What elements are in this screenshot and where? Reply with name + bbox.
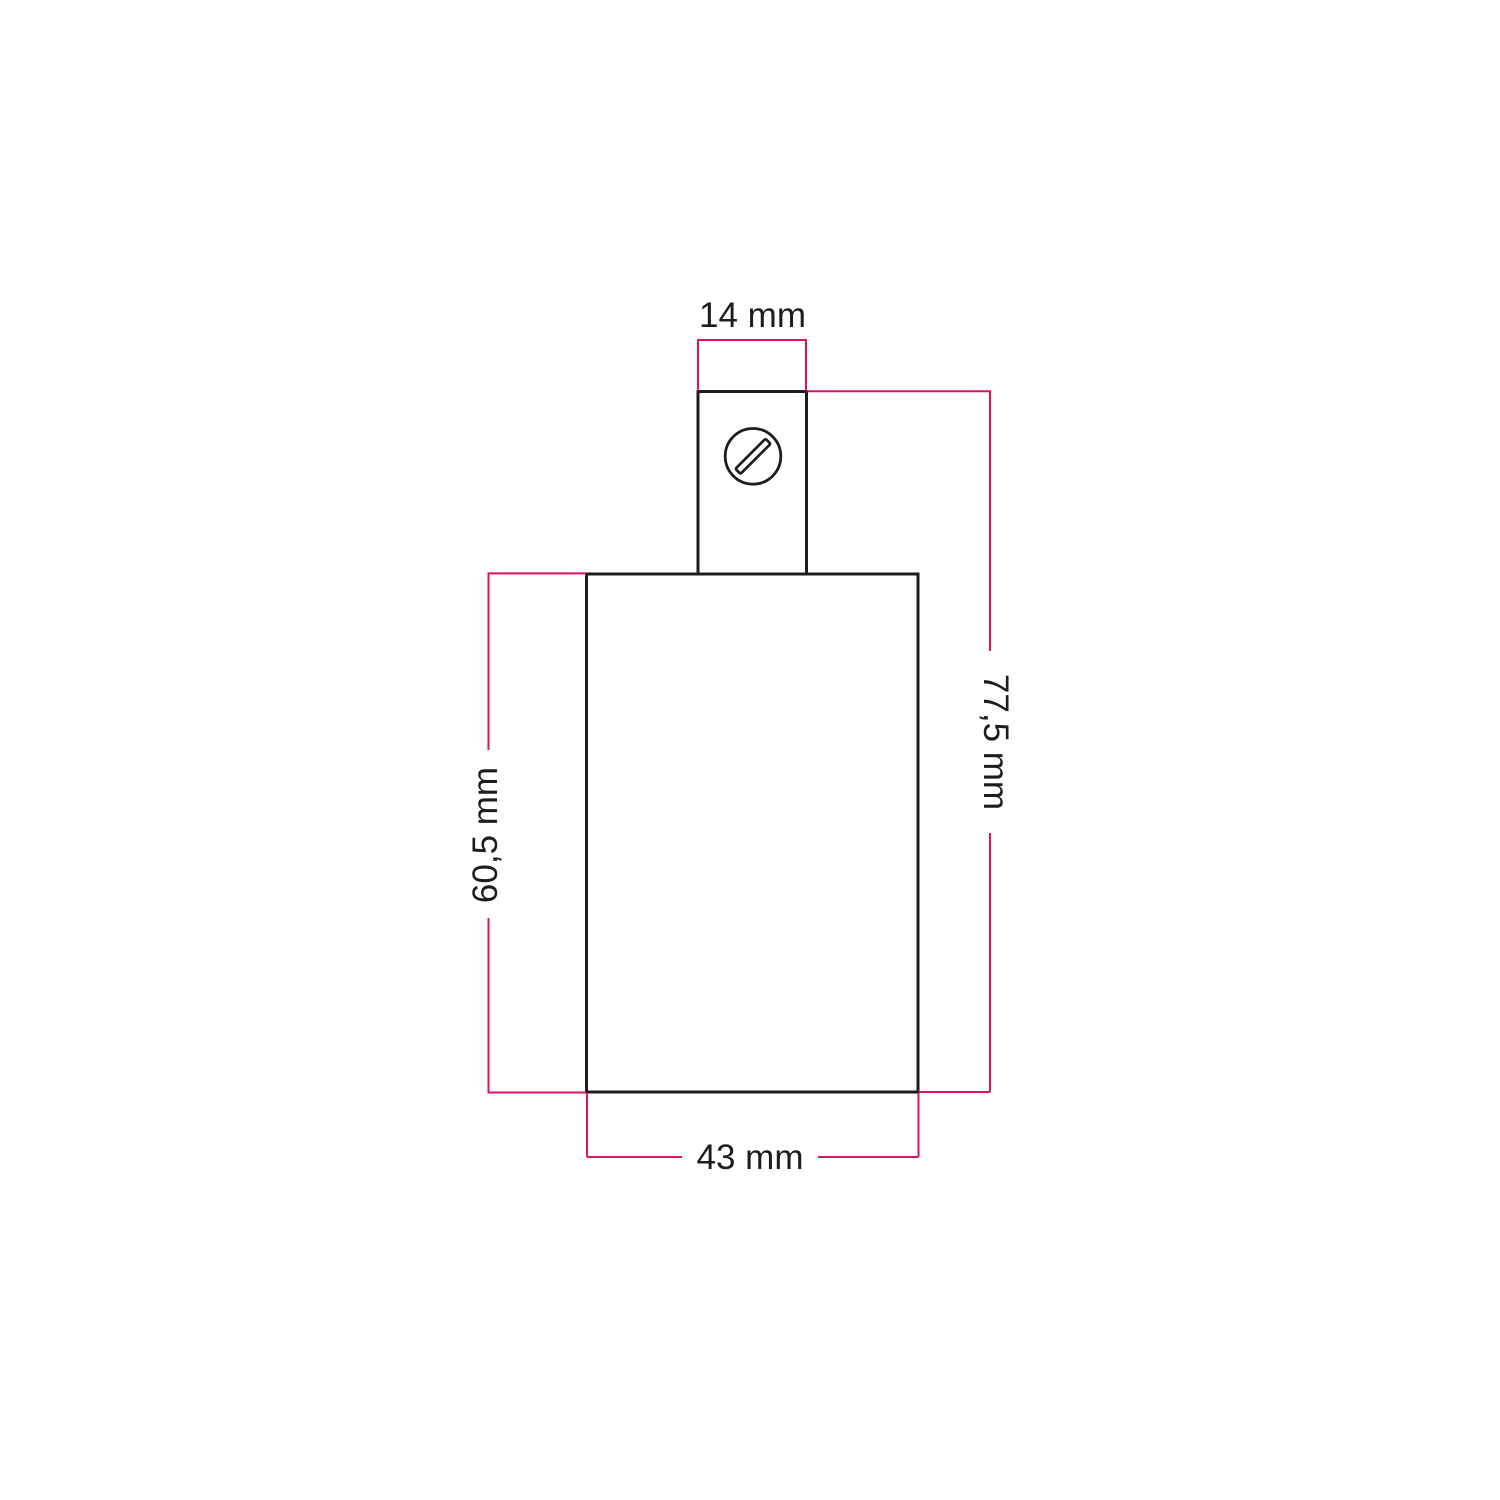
- svg-text:14 mm: 14 mm: [699, 296, 806, 335]
- svg-text:60,5 mm: 60,5 mm: [466, 767, 505, 903]
- svg-text:77,5 mm: 77,5 mm: [976, 674, 1015, 810]
- svg-text:43 mm: 43 mm: [697, 1138, 804, 1177]
